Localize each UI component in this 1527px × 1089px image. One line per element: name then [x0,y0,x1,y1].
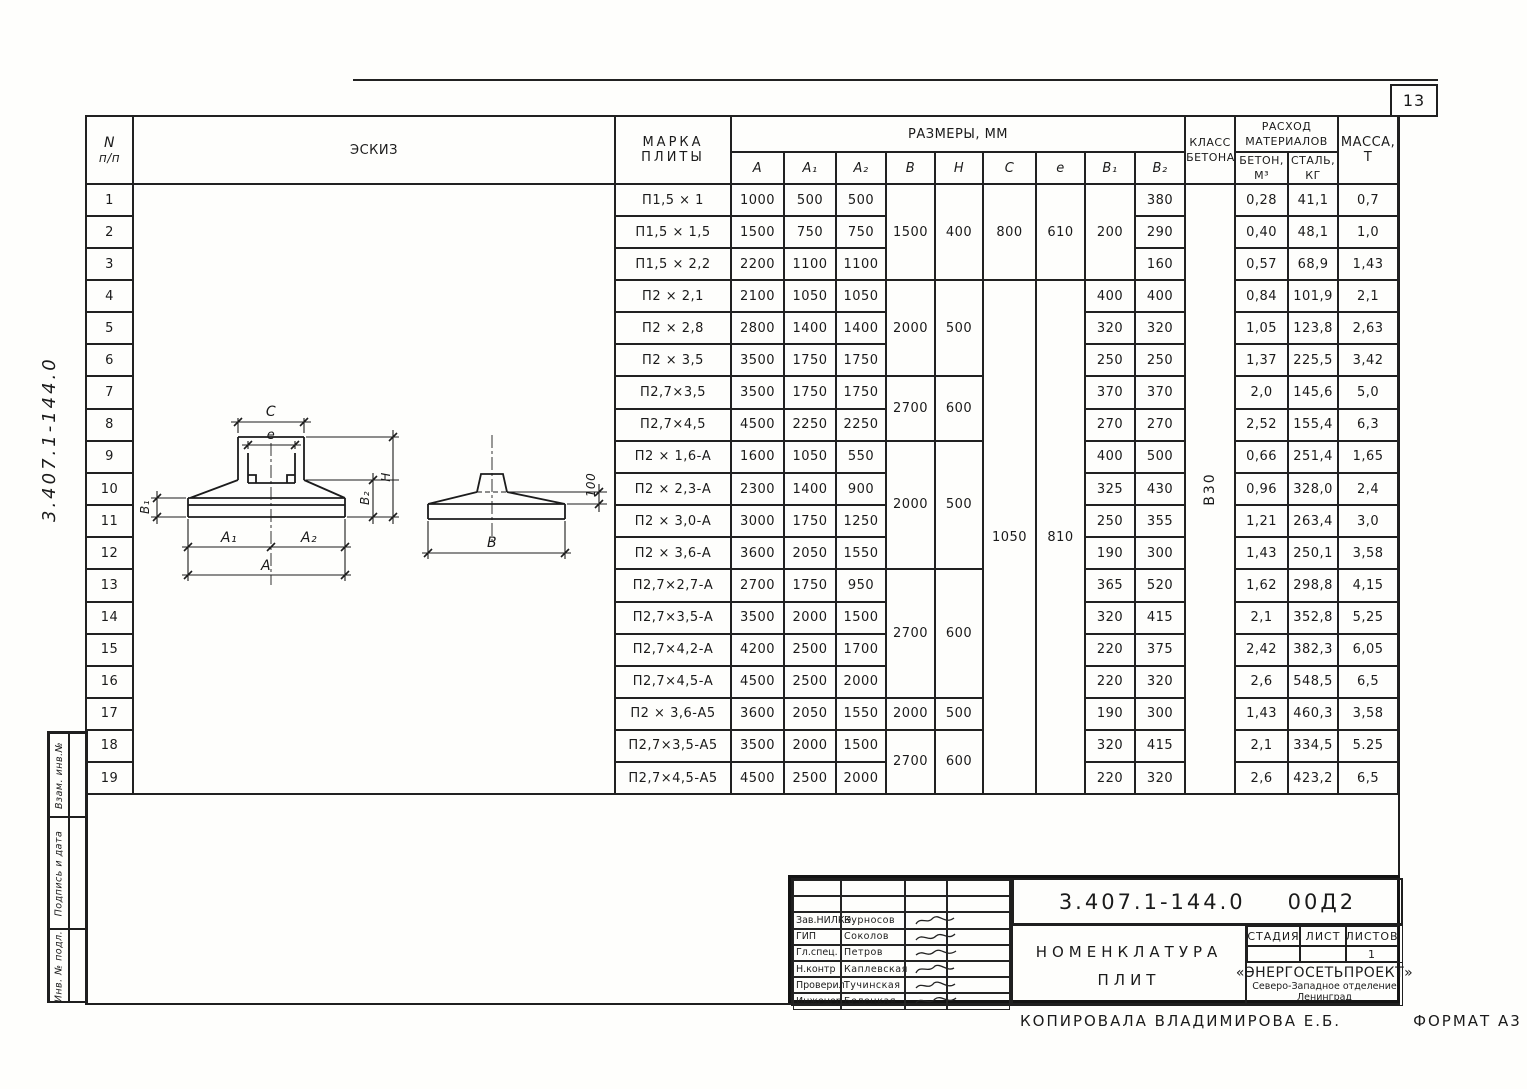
dim-a1: 1750 [784,344,836,376]
row-number: 7 [86,376,133,408]
dim-a: 3600 [731,698,784,730]
dim-a1: 2500 [784,666,836,698]
steel-weight: 251,4 [1288,441,1338,473]
dim-b2: 355 [1135,505,1185,537]
mass-value: 6,5 [1338,666,1398,698]
dim-label-h: H [379,472,393,482]
dim-b1: 190 [1085,698,1135,730]
mass-value: 2,1 [1338,280,1398,312]
dim-b1: 400 [1085,280,1135,312]
mass-header-line1: МАССА, [1339,135,1397,150]
doc-number: 3.407.1-144.0 [1059,890,1246,914]
row-number: 14 [86,602,133,634]
dim-a2: 550 [836,441,886,473]
signature-empty-cell [947,993,1010,1009]
dim-a1: 2250 [784,409,836,441]
dim-h: 600 [935,569,983,697]
plate-mark: П2,7×4,5-А [615,666,731,698]
plate-mark: П2,7×4,5-А5 [615,762,731,794]
stage-value [1247,946,1300,962]
col-header-materials: РАСХОД МАТЕРИАЛОВ [1235,116,1338,152]
organization-block: «ЭНЕРГОСЕТЬПРОЕКТ» Северо-Западное отдел… [1247,962,1402,1005]
sheet-label: ЛИСТ [1300,926,1346,946]
col-header-num: N п/п [86,116,133,184]
dim-a: 1600 [731,441,784,473]
plate-mark: П2 × 3,5 [615,344,731,376]
dim-a: 3600 [731,537,784,569]
row-number: 4 [86,280,133,312]
mass-value: 1,0 [1338,216,1398,248]
row-number: 6 [86,344,133,376]
sheets-label: ЛИСТОВ [1346,926,1398,946]
dim-b2: 370 [1135,376,1185,408]
dim-label-b2: B₂ [358,491,372,505]
dim-a1: 2000 [784,602,836,634]
dim-a1: 1750 [784,376,836,408]
signature-empty-cell [905,896,947,912]
steel-weight: 548,5 [1288,666,1338,698]
signature-scribble [905,961,947,977]
row-number: 13 [86,569,133,601]
steel-weight: 68,9 [1288,248,1338,280]
signature-empty-cell [793,896,841,912]
steel-weight: 382,3 [1288,634,1338,666]
plate-mark: П2,7×3,5-А5 [615,730,731,762]
row-number: 10 [86,473,133,505]
signature-name: Каплевская [841,961,905,977]
dim-a2: 1500 [836,730,886,762]
dim-b2: 290 [1135,216,1185,248]
mass-header-line2: Т [1339,150,1397,165]
dim-h: 400 [935,184,983,280]
concrete-volume: 0,66 [1235,441,1288,473]
dim-a2: 1500 [836,602,886,634]
stamp-cell-empty-3 [69,929,88,1003]
dim-a: 4200 [731,634,784,666]
row-number: 5 [86,312,133,344]
plate-mark: П2 × 3,6-А [615,537,731,569]
dim-e: 810 [1036,280,1085,794]
dim-a: 2800 [731,312,784,344]
nomenclature-table: N п/п ЭСКИЗ МАРКА ПЛИТЫ РАЗМЕРЫ, ММ КЛАС… [85,115,1399,795]
dim-b1: 320 [1085,602,1135,634]
dim-b: 2000 [886,280,935,376]
dim-a: 3500 [731,344,784,376]
dim-a1: 2000 [784,730,836,762]
dim-a: 2200 [731,248,784,280]
dim-a: 3500 [731,602,784,634]
signature-name: Курносов [841,912,905,928]
dim-b1: 320 [1085,730,1135,762]
dim-a2: 2000 [836,666,886,698]
col-header-e: e [1036,152,1085,184]
page-number: 13 [1403,91,1425,110]
drawing-title-line1: НОМЕНКЛАТУРА [1036,943,1223,961]
dim-a: 3000 [731,505,784,537]
mass-value: 5,25 [1338,602,1398,634]
dim-label-a: A [260,558,271,574]
col-header-concrete-class: КЛАСС БЕТОНА [1185,116,1235,184]
dim-a: 4500 [731,409,784,441]
col-header-a1: A₁ [784,152,836,184]
concrete-volume: 0,96 [1235,473,1288,505]
signature-scribble [905,993,947,1009]
concrete-volume: 0,57 [1235,248,1288,280]
dim-a1: 2500 [784,634,836,666]
signature-empty-cell [947,896,1010,912]
format-label: ФОРМАТ А3 [1413,1012,1522,1030]
signature-role: Гл.спец. [793,945,841,961]
signature-role: Проверил [793,977,841,993]
signature-empty-cell [841,880,905,896]
steel-header-line2: КГ [1289,168,1337,183]
signature-empty-cell [947,880,1010,896]
col-header-mass: МАССА, Т [1338,116,1398,184]
signature-role: Н.контр [793,961,841,977]
copied-by: КОПИРОВАЛА ВЛАДИМИРОВА Е.Б. [1020,1012,1341,1030]
sketch-cell: C e B₁ B₂ H A₁ A₂ A B 100 [133,184,615,794]
col-header-b: B [886,152,935,184]
row-number: 8 [86,409,133,441]
dim-b2: 380 [1135,184,1185,216]
row-number: 15 [86,634,133,666]
footer-caption: КОПИРОВАЛА ВЛАДИМИРОВА Е.Б. ФОРМАТ А3 [1020,1012,1522,1030]
mark-header-line2: ПЛИТЫ [616,150,730,165]
dim-b2: 250 [1135,344,1185,376]
stage-value-row: 1 [1247,946,1402,962]
plate-mark: П2,7×3,5-А [615,602,731,634]
concrete-volume: 1,43 [1235,537,1288,569]
concrete-volume: 2,52 [1235,409,1288,441]
mass-value: 6,3 [1338,409,1398,441]
org-city: Ленинград [1297,992,1352,1003]
row-number: 2 [86,216,133,248]
stamp-cell-empty-2 [69,817,88,929]
plate-mark: П1,5 × 1,5 [615,216,731,248]
dim-a2: 950 [836,569,886,601]
plate-mark: П2 × 2,3-А [615,473,731,505]
mass-value: 0,7 [1338,184,1398,216]
dim-a2: 1700 [836,634,886,666]
dim-a2: 1550 [836,537,886,569]
steel-weight: 123,8 [1288,312,1338,344]
stage-label: СТАДИЯ [1247,926,1300,946]
dim-a2: 1750 [836,376,886,408]
signature-name: Соколов [841,929,905,945]
dim-b1: 270 [1085,409,1135,441]
dim-b1: 320 [1085,312,1135,344]
plate-mark: П2 × 2,1 [615,280,731,312]
dim-a: 3500 [731,730,784,762]
doc-number-box: 3.407.1-144.0 00Д2 [1012,878,1403,925]
signature-role: ГИП [793,929,841,945]
materials-header-line2: МАТЕРИАЛОВ [1236,134,1337,149]
stamp-cell-inv: Инв. № подл. [49,929,69,1003]
dim-b1: 220 [1085,634,1135,666]
mass-value: 3,0 [1338,505,1398,537]
dim-a: 2100 [731,280,784,312]
steel-weight: 423,2 [1288,762,1338,794]
signature-table: Зав.НИЛКЭКурносовГИПСоколовГл.спец.Петро… [791,878,1012,1006]
stage-header-row: СТАДИЯ ЛИСТ ЛИСТОВ [1247,926,1402,946]
dim-a2: 750 [836,216,886,248]
stamp-label-podpis: Подпись и дата [54,830,65,916]
steel-weight: 225,5 [1288,344,1338,376]
row-number: 12 [86,537,133,569]
signature-role: Зав.НИЛКЭ [793,912,841,928]
row-number: 1 [86,184,133,216]
concrete-volume: 2,6 [1235,762,1288,794]
dim-b1: 370 [1085,376,1135,408]
drawing-title-box: НОМЕНКЛАТУРА ПЛИТ [1012,925,1246,1006]
dim-h: 500 [935,698,983,730]
dim-a2: 2250 [836,409,886,441]
dim-b2: 320 [1135,666,1185,698]
dim-a: 2700 [731,569,784,601]
col-header-h: H [935,152,983,184]
row-number: 3 [86,248,133,280]
dim-b2: 160 [1135,248,1185,280]
dimension-lines [151,418,607,581]
dim-b2: 270 [1135,409,1185,441]
concrete-volume: 1,43 [1235,698,1288,730]
dim-a2: 1550 [836,698,886,730]
mass-value: 3,42 [1338,344,1398,376]
steel-weight: 334,5 [1288,730,1338,762]
signature-empty-cell [947,945,1010,961]
plate-mark: П2 × 2,8 [615,312,731,344]
concrete-header-line1: БЕТОН, [1236,153,1287,168]
mass-value: 5.25 [1338,730,1398,762]
dim-b: 2700 [886,569,935,697]
dim-label-e: e [267,428,276,443]
mass-value: 1,65 [1338,441,1398,473]
dim-a1: 1050 [784,441,836,473]
mass-value: 5,0 [1338,376,1398,408]
dim-a1: 1400 [784,473,836,505]
steel-weight: 250,1 [1288,537,1338,569]
title-block: Зав.НИЛКЭКурносовГИПСоколовГл.спец.Петро… [788,875,1400,1003]
concrete-volume: 1,62 [1235,569,1288,601]
mass-value: 1,43 [1338,248,1398,280]
signature-empty-cell [947,929,1010,945]
plate-mark: П2,7×4,2-А [615,634,731,666]
mass-value: 2,63 [1338,312,1398,344]
signature-empty-cell [947,977,1010,993]
signature-role: Инженер [793,993,841,1009]
signature-name: Белецкая [841,993,905,1009]
signature-scribble [905,945,947,961]
steel-weight: 145,6 [1288,376,1338,408]
concrete-header-line2: М³ [1236,168,1287,183]
num-header-line1: N [87,135,132,151]
signature-scribble [905,912,947,928]
steel-weight: 41,1 [1288,184,1338,216]
concrete-volume: 2,6 [1235,666,1288,698]
plate-section-sketch: C e B₁ B₂ H A₁ A₂ A B 100 [135,185,613,789]
concrete-class-cell: В30 [1185,184,1235,794]
dim-a: 4500 [731,762,784,794]
plate-mark: П2,7×2,7-А [615,569,731,601]
dim-a2: 2000 [836,762,886,794]
dim-b: 2700 [886,376,935,440]
dim-a1: 2050 [784,537,836,569]
concrete-volume: 2,1 [1235,730,1288,762]
concrete-volume: 1,21 [1235,505,1288,537]
stage-sheet-box: СТАДИЯ ЛИСТ ЛИСТОВ 1 «ЭНЕРГОСЕТЬПРОЕКТ» … [1246,925,1403,1006]
dim-b1: 325 [1085,473,1135,505]
table-row: 1 C e B₁ B₂ H A₁ A₂ A B 100 П1,5 × 11000… [86,184,1398,216]
dim-a1: 1100 [784,248,836,280]
col-header-mark: МАРКА ПЛИТЫ [615,116,731,184]
dim-a2: 1100 [836,248,886,280]
dim-a2: 500 [836,184,886,216]
signature-name: Тучинская [841,977,905,993]
sheet-value [1300,946,1346,962]
signature-scribble [905,977,947,993]
dim-b2: 300 [1135,698,1185,730]
dim-b2: 500 [1135,441,1185,473]
stamp-cell-empty-1 [69,733,88,817]
dim-b2: 520 [1135,569,1185,601]
dim-a: 3500 [731,376,784,408]
concrete-volume: 1,05 [1235,312,1288,344]
col-header-b2: B₂ [1135,152,1185,184]
concrete-volume: 0,84 [1235,280,1288,312]
mass-value: 3,58 [1338,698,1398,730]
dim-h: 500 [935,441,983,569]
dim-e: 610 [1036,184,1085,280]
dim-b2: 400 [1135,280,1185,312]
dim-b1: 190 [1085,537,1135,569]
margin-doc-number: 3.407.1-144.0 [39,372,61,522]
col-header-steel: СТАЛЬ, КГ [1288,152,1338,184]
row-number: 16 [86,666,133,698]
stamp-label-inv: Инв. № подл. [54,930,65,1002]
plate-mark: П2,7×4,5 [615,409,731,441]
dim-b1: 250 [1085,505,1135,537]
dim-h: 600 [935,376,983,440]
concrete-volume: 1,37 [1235,344,1288,376]
dim-h: 500 [935,280,983,376]
dim-label-b: B [487,535,497,551]
signature-empty-cell [947,961,1010,977]
drawing-title-line2: ПЛИТ [1098,971,1161,989]
dim-a1: 1400 [784,312,836,344]
dim-a1: 1750 [784,569,836,601]
plate-mark: П2,7×3,5 [615,376,731,408]
margin-stamp-strip: Взам. инв.№ Подпись и дата Инв. № подл. [47,731,88,1003]
steel-weight: 263,4 [1288,505,1338,537]
dim-a: 1000 [731,184,784,216]
col-header-c: C [983,152,1036,184]
steel-weight: 328,0 [1288,473,1338,505]
dim-b2: 415 [1135,730,1185,762]
row-number: 18 [86,730,133,762]
dim-b1: 200 [1085,184,1135,280]
top-edge-line [353,79,1438,81]
materials-header-line1: РАСХОД [1236,119,1337,134]
dim-b1: 365 [1085,569,1135,601]
concrete-class-value: В30 [1202,465,1218,513]
stamp-cell-vzam: Взам. инв.№ [49,733,69,817]
row-number: 17 [86,698,133,730]
dim-label-a2: A₂ [300,530,317,546]
mass-value: 6,05 [1338,634,1398,666]
mass-value: 6,5 [1338,762,1398,794]
dim-a: 2300 [731,473,784,505]
plate-mark: П2 × 1,6-А [615,441,731,473]
steel-weight: 352,8 [1288,602,1338,634]
concrete-volume: 2,1 [1235,602,1288,634]
signature-empty-cell [905,880,947,896]
signature-empty-cell [793,880,841,896]
dim-a: 4500 [731,666,784,698]
page-number-box: 13 [1390,84,1438,117]
mass-value: 4,15 [1338,569,1398,601]
org-name: «ЭНЕРГОСЕТЬПРОЕКТ» [1236,965,1413,981]
col-header-sizes: РАЗМЕРЫ, ММ [731,116,1185,152]
dim-label-c: C [266,404,276,420]
concrete-volume: 2,42 [1235,634,1288,666]
dim-b: 2000 [886,698,935,730]
dim-b2: 375 [1135,634,1185,666]
col-header-a: A [731,152,784,184]
stamp-label-vzam: Взам. инв.№ [54,742,65,809]
sheets-value: 1 [1346,946,1398,962]
dim-a2: 1250 [836,505,886,537]
dim-b: 2000 [886,441,935,569]
signature-empty-cell [947,912,1010,928]
plate-mark: П1,5 × 2,2 [615,248,731,280]
dim-a2: 1400 [836,312,886,344]
steel-weight: 48,1 [1288,216,1338,248]
class-header-line2: БЕТОНА [1186,150,1234,165]
col-header-concrete: БЕТОН, М³ [1235,152,1288,184]
dim-b: 2700 [886,730,935,794]
doc-suffix: 00Д2 [1288,890,1357,914]
num-header-line2: п/п [87,151,132,166]
dim-b1: 220 [1085,762,1135,794]
dim-b2: 415 [1135,602,1185,634]
plate-mark: П1,5 × 1 [615,184,731,216]
signature-scribble [905,929,947,945]
plate-mark: П2 × 3,0-А [615,505,731,537]
dim-a1: 2500 [784,762,836,794]
dim-c: 800 [983,184,1036,280]
concrete-volume: 0,28 [1235,184,1288,216]
row-number: 9 [86,441,133,473]
dim-a1: 750 [784,216,836,248]
dim-b2: 320 [1135,312,1185,344]
dim-label-100: 100 [584,473,598,497]
col-header-sketch: ЭСКИЗ [133,116,615,184]
col-header-a2: A₂ [836,152,886,184]
class-header-line1: КЛАСС [1186,135,1234,150]
mass-value: 2,4 [1338,473,1398,505]
scanned-drawing-sheet: 13 N п/п ЭСКИЗ МАРКА ПЛИТЫ [0,0,1527,1089]
dim-b1: 400 [1085,441,1135,473]
dim-a1: 1050 [784,280,836,312]
dim-a2: 1750 [836,344,886,376]
dim-a1: 500 [784,184,836,216]
dim-b2: 320 [1135,762,1185,794]
dim-b: 1500 [886,184,935,280]
signature-name: Петров [841,945,905,961]
row-number: 11 [86,505,133,537]
stamp-cell-podpis: Подпись и дата [49,817,69,929]
dim-b2: 430 [1135,473,1185,505]
